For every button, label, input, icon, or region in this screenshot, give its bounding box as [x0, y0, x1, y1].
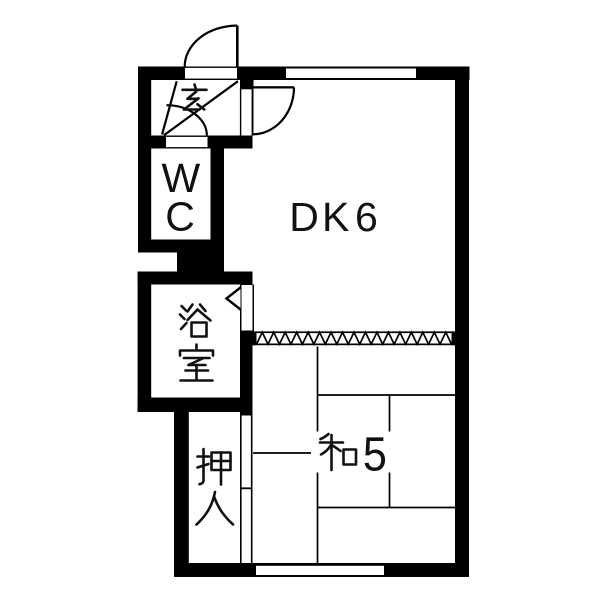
svg-text:6: 6 [355, 194, 378, 240]
svg-text:5: 5 [363, 427, 387, 481]
svg-text:D: D [289, 194, 319, 240]
svg-text:K: K [322, 194, 349, 240]
svg-text:C: C [165, 194, 195, 240]
